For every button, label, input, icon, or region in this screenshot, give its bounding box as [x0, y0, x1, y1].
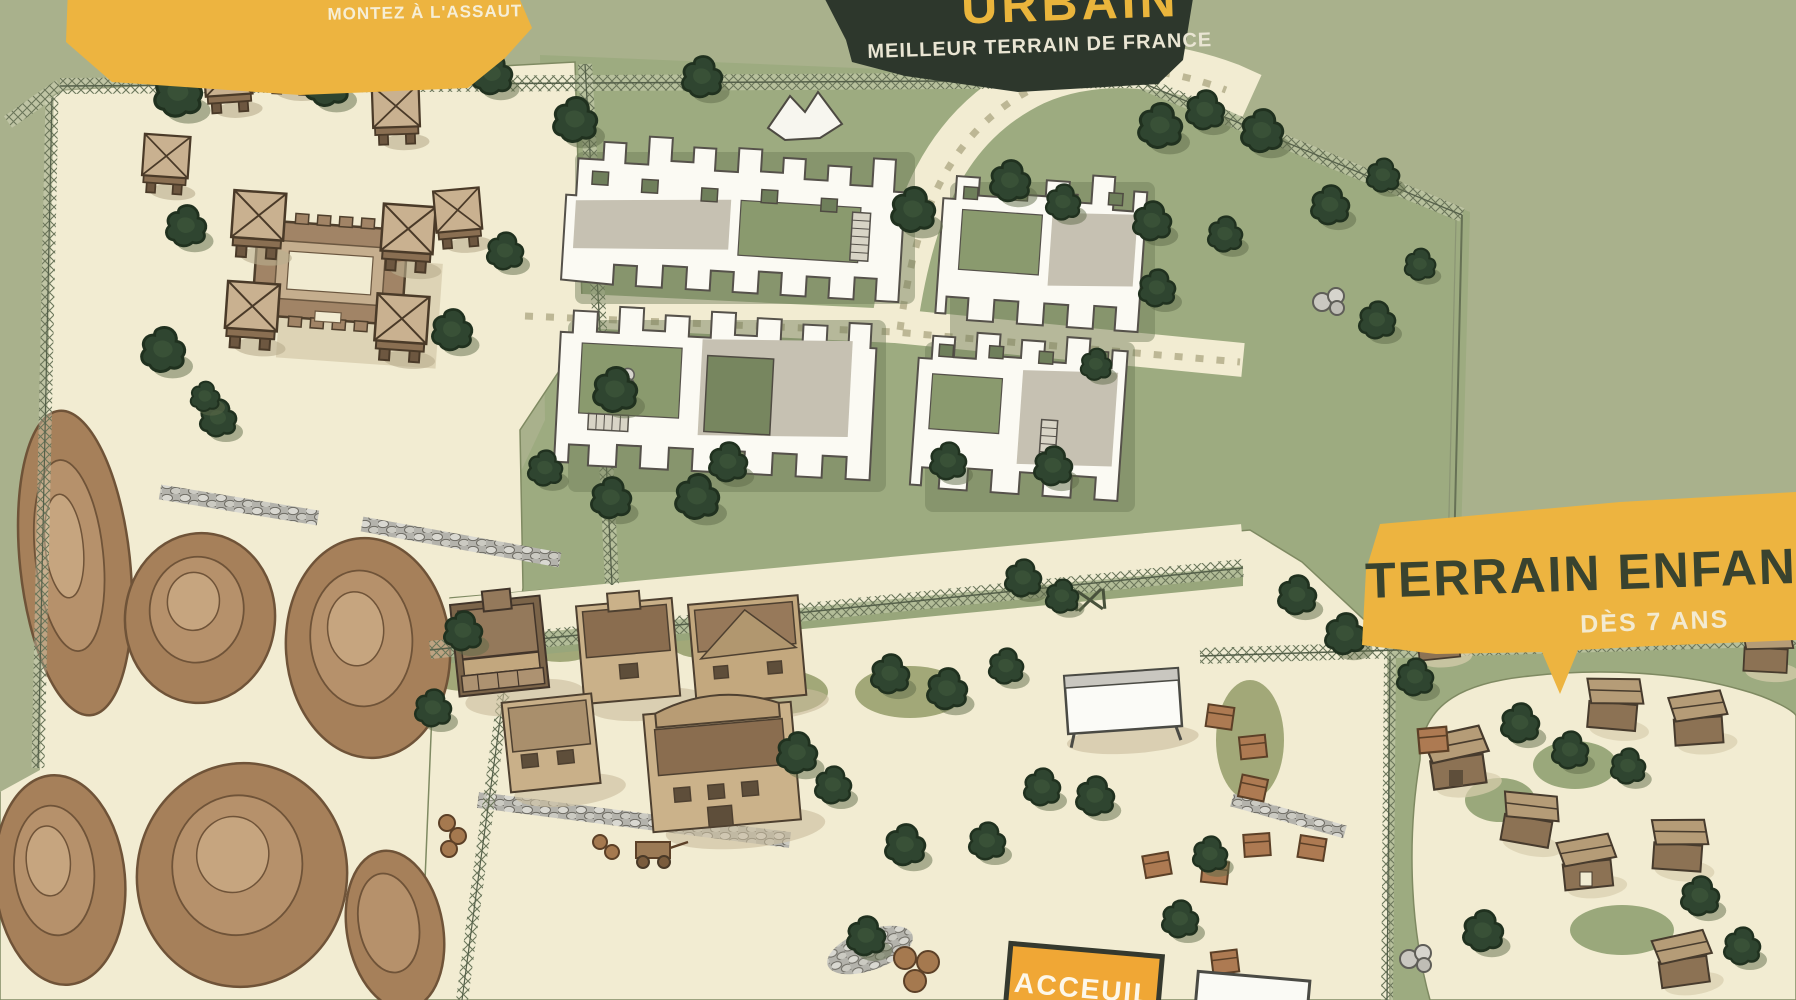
- banner-assault: MONTEZ À L'ASSAUT: [66, 0, 532, 95]
- park-map: MONTEZ À L'ASSAUT URBAIN MEILLEUR TERRAI…: [0, 0, 1796, 1000]
- crate: [1206, 704, 1235, 729]
- crate: [1211, 949, 1239, 974]
- fort-gate: [315, 311, 342, 323]
- crate: [1418, 727, 1449, 754]
- banner-kids-subtitle: DÈS 7 ANS: [1580, 604, 1730, 638]
- hut-door: [1580, 872, 1592, 886]
- crate: [1243, 833, 1270, 857]
- banner-assault-label: MONTEZ À L'ASSAUT: [327, 1, 522, 23]
- crate: [1238, 775, 1268, 802]
- crate: [1239, 735, 1267, 760]
- hut-door: [1449, 770, 1463, 786]
- park-map-page: MONTEZ À L'ASSAUT URBAIN MEILLEUR TERRAI…: [0, 0, 1796, 1000]
- crate: [1297, 835, 1326, 861]
- canopy: [1062, 667, 1199, 758]
- crate: [1142, 852, 1171, 878]
